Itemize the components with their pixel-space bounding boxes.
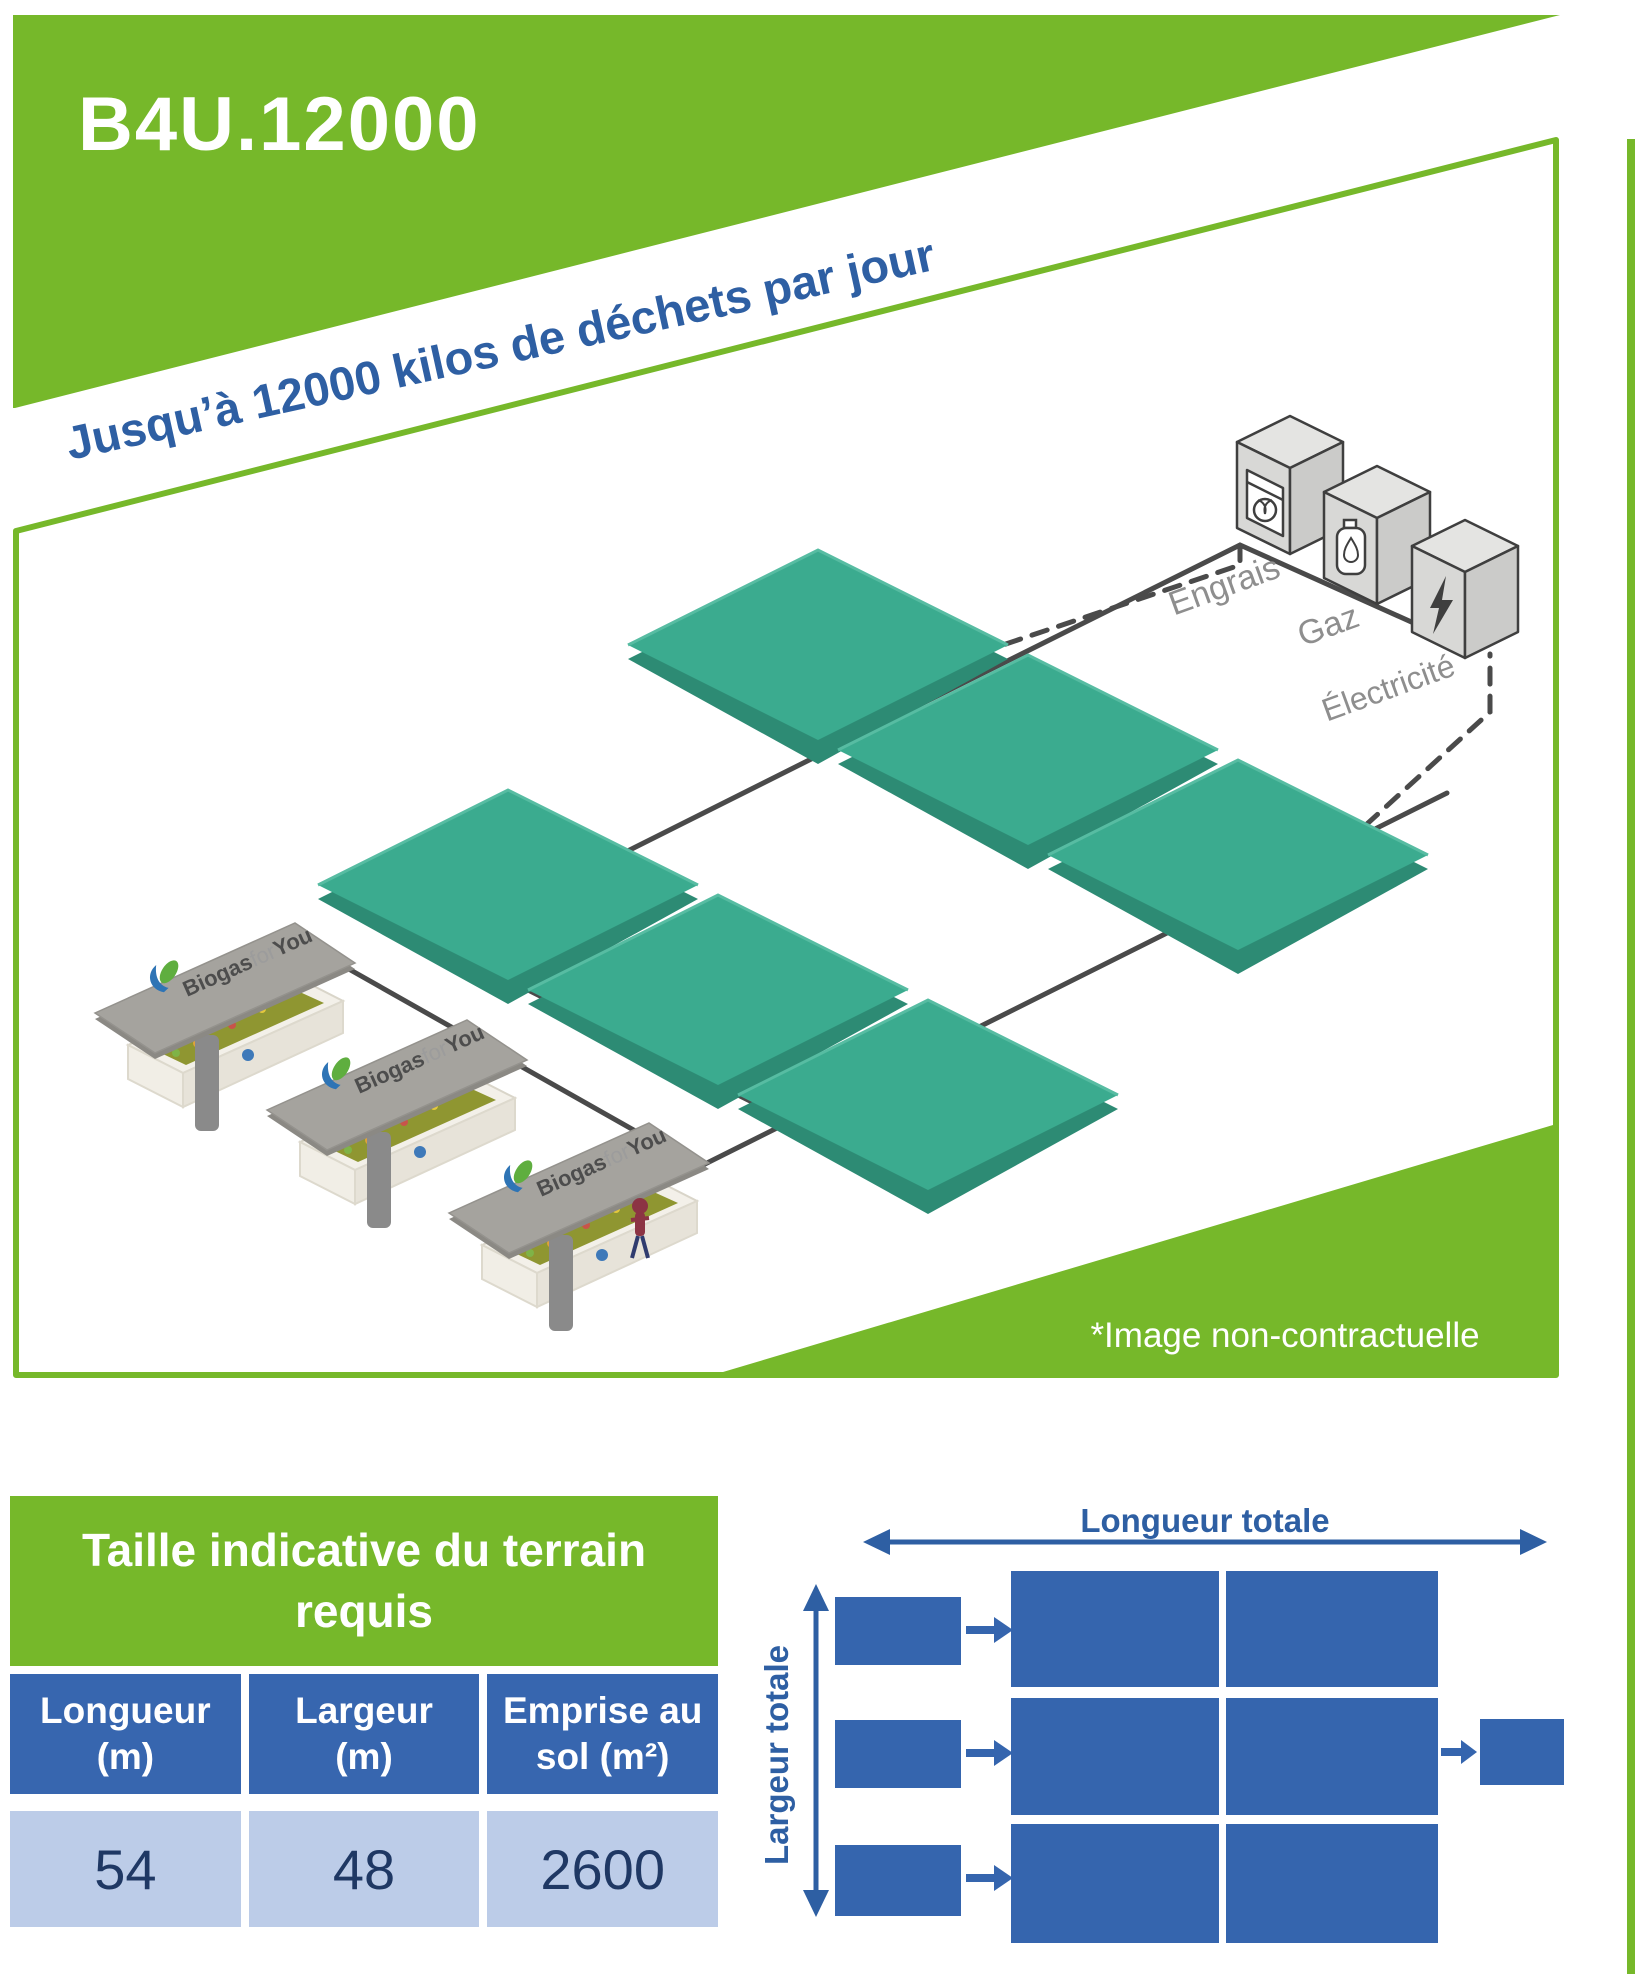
header-cell-emprise: Emprise au sol (m²) [487,1674,718,1794]
width-arrow [803,1584,829,1917]
datasheet-page: BiogasforYou B4U.12000 Jusqu’à 12000 kil… [0,0,1641,1974]
size-table: Taille indicative du terrain requis Long… [10,1496,718,1927]
value-largeur: 48 [249,1811,480,1927]
size-table-value-row: 54 48 2600 [10,1811,718,1927]
gas-bottle-icon [1337,520,1365,574]
header-cell-longueur: Longueur (m) [10,1674,241,1794]
feed-block-1 [835,1597,961,1665]
value-longueur: 54 [10,1811,241,1927]
output-block [1480,1719,1564,1785]
value-emprise: 2600 [487,1811,718,1927]
footprint-schematic: Longueur totale Largeur totale [758,1502,1564,1943]
digester-block-5 [1011,1824,1219,1943]
width-total-label: Largeur totale [758,1645,795,1865]
feed-block-2 [835,1720,961,1788]
header-emprise-line2: sol (m²) [536,1734,670,1780]
digester-block-3 [1011,1698,1219,1815]
header-largeur-line2: (m) [335,1734,393,1780]
length-total-label: Longueur totale [1080,1502,1329,1539]
digester-block-2 [1226,1571,1438,1687]
header-longueur-line2: (m) [97,1734,155,1780]
image-caption: *Image non-contractuelle [1090,1316,1479,1355]
product-title: B4U.12000 [78,82,481,167]
size-table-title: Taille indicative du terrain requis [10,1496,718,1666]
size-table-header-row: Longueur (m) Largeur (m) Emprise au sol … [10,1674,718,1794]
header-longueur-line1: Longueur [40,1688,211,1734]
schematic-blocks [835,1571,1564,1943]
digester-block-1 [1011,1571,1219,1687]
header-largeur-line1: Largeur [295,1688,433,1734]
header-cell-largeur: Largeur (m) [249,1674,480,1794]
right-edge-stripe [1627,139,1635,1974]
digester-block-4 [1226,1698,1438,1815]
header-emprise-line1: Emprise au [503,1688,702,1734]
feed-block-3 [835,1845,961,1916]
digester-block-6 [1226,1824,1438,1943]
